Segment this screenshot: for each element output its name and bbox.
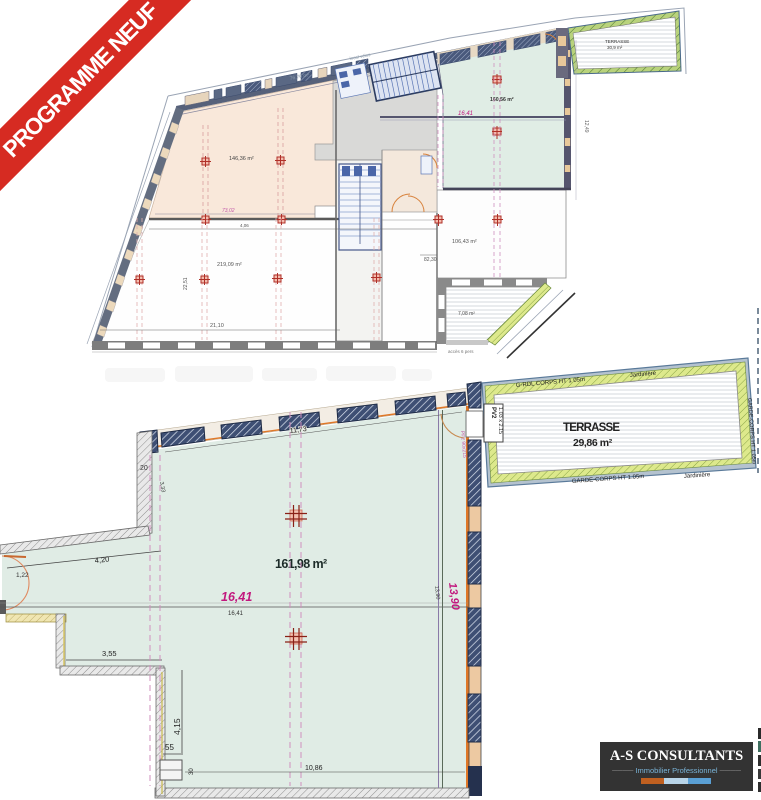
svg-text:TERRASSE: TERRASSE: [605, 39, 629, 44]
svg-text:30,9 m²: 30,9 m²: [607, 45, 623, 50]
svg-text:219,09 m²: 219,09 m²: [217, 262, 242, 268]
svg-text:accès 6 pers: accès 6 pers: [448, 349, 474, 354]
svg-text:30: 30: [189, 768, 195, 775]
svg-text:106,43 m²: 106,43 m²: [452, 239, 477, 245]
svg-text:1,22: 1,22: [16, 572, 29, 579]
svg-text:82,30: 82,30: [424, 257, 437, 263]
svg-text:146,36 m²: 146,36 m²: [229, 156, 254, 162]
svg-text:73,02: 73,02: [222, 208, 235, 214]
svg-text:20: 20: [140, 465, 148, 472]
svg-text:16,41: 16,41: [458, 111, 473, 117]
svg-text:1.03 x 2.15: 1.03 x 2.15: [497, 407, 503, 434]
svg-text:4,15: 4,15: [172, 718, 182, 735]
svg-text:16,41: 16,41: [221, 590, 252, 604]
svg-text:12,49: 12,49: [583, 120, 589, 133]
svg-text:3,55: 3,55: [102, 649, 117, 658]
svg-text:7,08 m²: 7,08 m²: [458, 311, 475, 317]
svg-text:4,20: 4,20: [94, 555, 109, 565]
svg-text:55: 55: [165, 743, 174, 752]
svg-text:16,41: 16,41: [228, 611, 244, 617]
svg-text:21,10: 21,10: [210, 323, 224, 329]
svg-text:TERRASSE: TERRASSE: [563, 422, 620, 434]
svg-text:160,56 m²: 160,56 m²: [490, 97, 514, 103]
svg-text:PV2: PV2: [490, 407, 496, 419]
svg-text:10,86: 10,86: [305, 765, 323, 772]
svg-text:22,51: 22,51: [183, 277, 189, 290]
svg-text:Jardinière: Jardinière: [684, 472, 711, 480]
svg-text:4,06: 4,06: [240, 223, 249, 228]
svg-text:29,86 m²: 29,86 m²: [573, 437, 613, 449]
